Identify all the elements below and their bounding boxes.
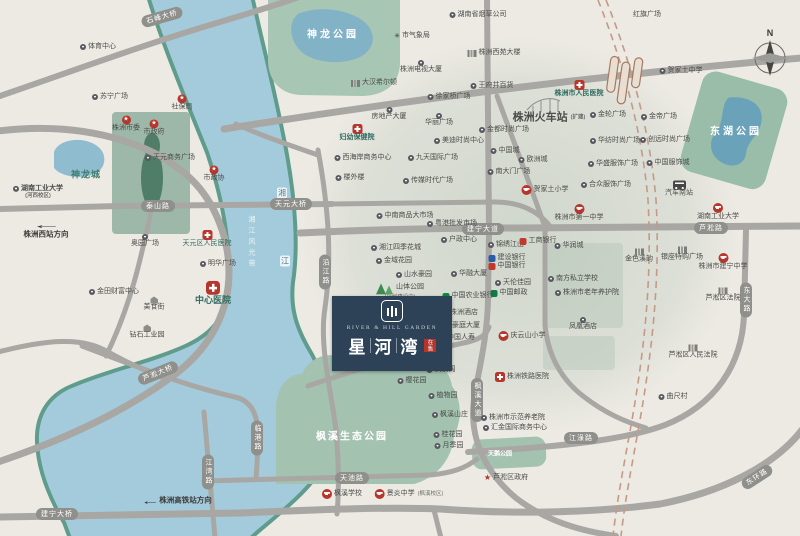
- poi-label: 美食街: [144, 303, 165, 311]
- poi-row: 粤港批发市场: [427, 220, 477, 228]
- poi-label: 市政府: [144, 128, 165, 136]
- area-label: 湘: [277, 188, 287, 199]
- poi-label: 枫溪学校: [334, 490, 362, 498]
- dot-icon: [590, 138, 596, 144]
- dot-icon: [432, 412, 438, 418]
- poi: 株洲西苑大楼: [468, 49, 521, 57]
- bank-red-icon: [489, 262, 496, 269]
- hosp-icon: [202, 230, 212, 240]
- poi-label: 湘江四季花城: [379, 244, 421, 252]
- poi-label: 株洲火车站: [513, 112, 568, 125]
- poi-row: 华融大厦: [451, 270, 487, 278]
- poi: 天元区人民医院: [183, 230, 232, 248]
- poi-row: 房地产大厦: [372, 113, 407, 121]
- poi: 妇幼保健院: [340, 124, 375, 142]
- poi-label: 株洲市委: [112, 124, 140, 132]
- poi: 金田财富中心: [89, 288, 139, 296]
- dot-icon: [647, 160, 653, 166]
- poi-row: 山体公园: [376, 281, 424, 294]
- poi-label: 创远时尚广场: [648, 136, 690, 144]
- dot-icon: [80, 44, 86, 50]
- poi-row: 枫溪学校: [322, 489, 362, 499]
- poi-row: 楼外楼: [336, 174, 365, 182]
- poi: 南方私立学校: [548, 275, 598, 283]
- poi-row: 妇幼保健院: [340, 134, 375, 142]
- poi-row: 贺家土中学: [660, 67, 703, 75]
- poi-label: 美迪时尚中心: [442, 137, 484, 145]
- dot-icon: [13, 186, 19, 192]
- poi: 美迪时尚中心: [434, 137, 484, 145]
- house-icon: [150, 296, 158, 303]
- school-icon: [322, 489, 332, 499]
- poi-label: 房地产大厦: [372, 113, 407, 121]
- dot-icon: [488, 169, 494, 175]
- poi-row: ★芦淞区政府: [484, 474, 528, 482]
- poi: 建设银行: [489, 254, 526, 262]
- bld-icon: [351, 79, 360, 86]
- poi: 曲尺村: [659, 393, 688, 401]
- dot-icon: [451, 271, 457, 277]
- asterisk-icon: ✳: [394, 32, 400, 39]
- poi-label: 金色溪韵: [625, 255, 653, 263]
- poi-label: 建设银行: [498, 254, 526, 262]
- poi-row: 湖南工业大学: [697, 213, 739, 221]
- poi-row: 庆云山小学: [499, 331, 546, 341]
- poi-label: 奥园广场: [131, 240, 159, 248]
- poi-label: 湖南工业大学: [21, 185, 63, 193]
- dot-icon: [371, 245, 377, 251]
- poi-row: 株洲市人民医院: [555, 90, 604, 98]
- poi-label: 贺家土中学: [668, 67, 703, 75]
- poi-row: 钻石工业园: [130, 331, 165, 339]
- poi-label: 豪庭大厦: [452, 322, 480, 330]
- poi-row: 体育中心: [80, 43, 116, 51]
- poi-label: 华丽广场: [425, 119, 453, 127]
- poi-label: 凤凰酒店: [569, 323, 597, 331]
- poi-row: 社保局: [172, 103, 193, 111]
- poi-label: 株洲市示范养老院: [489, 414, 545, 422]
- poi: 株洲火车站(扩建): [513, 112, 586, 125]
- poi-row: 奥园广场: [131, 240, 159, 248]
- poi: 楼外楼: [336, 174, 365, 182]
- poi: 金色溪韵: [625, 248, 653, 263]
- dot-icon: [408, 155, 414, 161]
- dot-icon: [491, 148, 497, 154]
- area-label: 江: [280, 256, 290, 267]
- poi: ✳市气象局: [394, 32, 430, 40]
- poi-row: 红旗广场: [633, 11, 661, 19]
- property-name-char: 湾: [401, 333, 418, 358]
- poi: 湘江四季花城: [371, 244, 421, 252]
- poi-label: 天元区人民医院: [183, 240, 232, 248]
- poi-label: 中国邮政: [500, 289, 528, 297]
- poi-row: 株洲火车站(扩建): [513, 112, 586, 125]
- road-label: 沿江路: [319, 255, 331, 290]
- poi: ★芦淞区政府: [484, 474, 528, 482]
- poi-label: 中心医院: [195, 295, 231, 305]
- poi-label: 芦淞区人民法院: [669, 351, 718, 359]
- poi: 南大门广场: [488, 168, 531, 176]
- poi-row: 芦淞区人民法院: [669, 351, 718, 359]
- poi: 中国银行: [489, 262, 526, 270]
- poi-row: 中心医院: [195, 295, 231, 305]
- poi: 九天国际广场: [408, 154, 458, 162]
- poi: 金帝广场: [641, 113, 677, 121]
- property-badge: RIVER & HILL GARDEN 星河湾在售: [332, 296, 452, 371]
- poi-label: 金都时尚广场: [487, 126, 529, 134]
- dot-icon: [200, 261, 206, 267]
- poi: ★社保局: [172, 94, 193, 111]
- poi-label: 体育中心: [88, 43, 116, 51]
- tree-icon: [376, 281, 394, 294]
- dot-icon: [376, 258, 382, 264]
- poi-row: 美迪时尚中心: [434, 137, 484, 145]
- poi-label: 社保局: [172, 103, 193, 111]
- poi: 美食街: [144, 296, 165, 311]
- poi-row: 华润城: [555, 242, 584, 250]
- dot-icon: [519, 157, 525, 163]
- poi: 贺家土中学: [660, 67, 703, 75]
- poi-row: 金域花园: [376, 257, 412, 265]
- poi-row: 合众服饰广场: [581, 181, 631, 189]
- poi-label: 贺家土小学: [534, 186, 569, 194]
- dot-icon: [428, 94, 434, 100]
- poi: 株洲市老年养护院: [555, 289, 619, 297]
- poi-label: 户政中心: [449, 236, 477, 244]
- dot-icon: [450, 12, 456, 18]
- poi: 中国邮政: [491, 289, 528, 297]
- arrow-left-icon: ←: [30, 221, 61, 229]
- poi-label: 株洲酒店: [450, 309, 478, 317]
- poi-label: 华纺时尚广场: [598, 137, 640, 145]
- poi-label: 南大门广场: [496, 168, 531, 176]
- poi-label-suffix: (枫溪校区): [418, 491, 444, 497]
- poi-row: 曲尺村: [659, 393, 688, 401]
- area-label: 神龙城: [71, 168, 101, 181]
- dot-icon: [483, 425, 489, 431]
- poi-row: 金轮广场: [590, 111, 626, 119]
- poi-row: 山水豪园: [396, 271, 432, 279]
- poi: 徐家桥广场: [428, 93, 471, 101]
- poi: 植物园: [429, 392, 458, 400]
- bld-icon: [468, 49, 477, 56]
- school-icon: [574, 204, 584, 214]
- poi-label: 工商银行: [529, 237, 557, 245]
- poi: 凤凰酒店: [569, 317, 597, 331]
- poi-label: 徐家桥广场: [436, 93, 471, 101]
- poi-label: 传媒时代广场: [411, 177, 453, 185]
- dot-icon: [427, 221, 433, 227]
- poi-row: 市政府: [144, 128, 165, 136]
- area-label: 神龙公园: [307, 26, 359, 41]
- poi: 苏宁广场: [92, 93, 128, 101]
- poi: ★市政协: [204, 165, 225, 182]
- poi-row: 创远时尚广场: [640, 136, 690, 144]
- dot-icon: [660, 68, 666, 74]
- poi-row: 湖南工业大学: [13, 185, 63, 193]
- hosp-lg-icon: [206, 281, 220, 295]
- poi-row: 金都时尚广场: [479, 126, 529, 134]
- poi-row: 金色溪韵: [625, 255, 653, 263]
- poi-row: 银座特购广场: [661, 253, 703, 261]
- poi: 奥园广场: [131, 234, 159, 248]
- poi: 天伦佳园: [495, 279, 531, 287]
- poi-label: 九天国际广场: [416, 154, 458, 162]
- direction-label: ←株洲西站方向: [24, 221, 69, 240]
- poi: ★市政府: [144, 119, 165, 136]
- poi-label: 西海岸商务中心: [343, 154, 392, 162]
- property-logo-icon: [381, 300, 403, 322]
- poi: 株洲市示范养老院: [481, 414, 545, 422]
- poi: 西海岸商务中心: [335, 154, 392, 162]
- area-label: 湘江风光带: [246, 216, 256, 271]
- poi-label: 金帝广场: [649, 113, 677, 121]
- poi-label: 枫溪山庄: [440, 411, 468, 419]
- poi: 金都时尚广场: [479, 126, 529, 134]
- direction-label: ←株洲高铁站方向: [144, 495, 212, 506]
- gov-icon: ★: [178, 94, 187, 103]
- poi-label: 植物园: [437, 392, 458, 400]
- poi: 华融大厦: [451, 270, 487, 278]
- property-name-char: 河: [375, 333, 392, 358]
- school-icon: [499, 331, 509, 341]
- school-icon: [713, 203, 723, 213]
- poi-label: 樱花园: [406, 377, 427, 385]
- poi: 贺家土小学: [522, 185, 569, 195]
- poi-label: 粤港批发市场: [435, 220, 477, 228]
- poi-label: 红旗广场: [633, 11, 661, 19]
- dot-icon: [434, 138, 440, 144]
- poi: 中心医院: [195, 281, 231, 305]
- poi-label: 市政协: [204, 174, 225, 182]
- area-label: 天鹅公园: [488, 449, 512, 458]
- poi-row: 株洲市示范养老院: [481, 414, 545, 422]
- poi-label: 苏宁广场: [100, 93, 128, 101]
- gov-icon: ★: [210, 165, 219, 174]
- poi-label: 桂花园: [442, 431, 463, 439]
- poi: 桂花园: [434, 431, 463, 439]
- poi-label: 湖南工业大学: [697, 213, 739, 221]
- dot-icon: [429, 393, 435, 399]
- poi-label: 株洲市第一中学: [555, 214, 604, 222]
- dot-icon: [590, 112, 596, 118]
- poi-label: 妇幼保健院: [340, 134, 375, 142]
- poi: 欧洲城: [519, 156, 548, 164]
- poi-label: 庆云山小学: [511, 332, 546, 340]
- bld-icon: [635, 248, 644, 255]
- poi-row: 市政协: [204, 174, 225, 182]
- poi: 枫溪学校: [322, 489, 362, 499]
- bank-blue-icon: [489, 254, 496, 261]
- compass-north-label: N: [767, 28, 774, 38]
- poi-row: 王府井百货: [471, 82, 514, 90]
- location-map: 体育中心苏宁广场★社保局★株洲市委★市政府天元商务广场★市政协湖南工业大学(河西…: [0, 0, 800, 536]
- poi-row: 湘江四季花城: [371, 244, 421, 252]
- road-label: 建宁大桥: [36, 508, 78, 520]
- poi-row: 株洲西苑大楼: [468, 49, 521, 57]
- poi-label: 株洲市建宁中学: [699, 263, 748, 271]
- poi-label: 华融大厦: [459, 270, 487, 278]
- dot-icon: [581, 182, 587, 188]
- poi-row: 植物园: [429, 392, 458, 400]
- poi-row: 株洲铁路医院: [495, 372, 549, 382]
- poi: 红旗广场: [633, 11, 661, 19]
- poi-row: 枫溪山庄: [432, 411, 468, 419]
- bld-icon: [678, 246, 687, 253]
- poi-label: 银座特购广场: [661, 253, 703, 261]
- poi: 株洲铁路医院: [495, 372, 549, 382]
- poi: 创远时尚广场: [640, 136, 690, 144]
- road-label: 临港路: [251, 421, 263, 456]
- road-label: 江湾路: [202, 455, 214, 490]
- poi-label: 中国农业银行: [452, 292, 494, 300]
- dot-icon: [377, 213, 383, 219]
- poi: 大汉希尔顿: [351, 79, 397, 87]
- poi: 王府井百货: [471, 82, 514, 90]
- poi: 庆云山小学: [499, 331, 546, 341]
- poi: 中国城: [491, 147, 520, 155]
- dot-icon: [479, 127, 485, 133]
- poi: 房地产大厦: [372, 107, 407, 121]
- dot-icon: [640, 137, 646, 143]
- poi: 中南商品大市场: [377, 212, 434, 220]
- poi: 湖南工业大学(河西校区): [13, 185, 63, 199]
- school-icon: [718, 253, 728, 263]
- poi: 汽车南站: [665, 180, 693, 197]
- dot-icon: [481, 415, 487, 421]
- dot-icon: [398, 378, 404, 384]
- dot-icon: [336, 175, 342, 181]
- char-divider: [370, 338, 371, 353]
- gov-icon: ★: [122, 115, 131, 124]
- poi-row: 樱花园: [398, 377, 427, 385]
- area-label: 东湖公园: [710, 123, 762, 138]
- poi-row: 月季园: [435, 442, 464, 450]
- poi-row: 贺家土小学: [522, 185, 569, 195]
- poi: 华纺时尚广场: [590, 137, 640, 145]
- gov-icon: ★: [150, 119, 159, 128]
- poi-label: 曲尺村: [667, 393, 688, 401]
- dot-icon: [548, 276, 554, 282]
- poi-label: 南方私立学校: [556, 275, 598, 283]
- poi-label: 合众服饰广场: [589, 181, 631, 189]
- poi-label: 山体公园: [396, 284, 424, 292]
- poi-row: 汇金国际商务中心: [483, 424, 547, 432]
- bus-icon: [673, 180, 686, 189]
- road-label: 天池路: [335, 472, 369, 484]
- poi: 株洲市建宁中学: [699, 253, 748, 271]
- poi-row: 中国银行: [489, 262, 526, 270]
- road-label: 东大路: [740, 283, 752, 318]
- property-name-char: 星: [349, 333, 366, 358]
- poi-row: 南大门广场: [488, 168, 531, 176]
- poi: 山水豪园: [396, 271, 432, 279]
- poi: 粤港批发市场: [427, 220, 477, 228]
- poi-row: 株洲市委: [112, 124, 140, 132]
- poi-row: 金田财富中心: [89, 288, 139, 296]
- poi: 株洲市人民医院: [555, 80, 604, 98]
- poi: 合众服饰广场: [581, 181, 631, 189]
- dot-icon: [588, 161, 594, 167]
- poi-row: 株洲市第一中学: [555, 214, 604, 222]
- poi-label: 金田财富中心: [97, 288, 139, 296]
- poi-label: 华盛服饰广场: [596, 160, 638, 168]
- bank-red-icon: [520, 237, 527, 244]
- road-label: 东环路: [739, 463, 774, 492]
- poi-row: 九天国际广场: [408, 154, 458, 162]
- poi-label: 金域花园: [384, 257, 412, 265]
- dot-icon: [488, 242, 494, 248]
- hosp-icon: [574, 80, 584, 90]
- dot-icon: [403, 178, 409, 184]
- poi-row: 凤凰酒店: [569, 323, 597, 331]
- poi-row: 明华广场: [200, 260, 236, 268]
- poi-label: 大汉希尔顿: [362, 79, 397, 87]
- poi-row: 美食街: [144, 303, 165, 311]
- dot-icon: [641, 114, 647, 120]
- dot-icon: [335, 155, 341, 161]
- school-icon: [522, 185, 532, 195]
- poi-label: 天元商务广场: [153, 154, 195, 162]
- poi: 汇金国际商务中心: [483, 424, 547, 432]
- poi-row: 传媒时代广场: [403, 177, 453, 185]
- poi: 传媒时代广场: [403, 177, 453, 185]
- poi-label-suffix: (扩建): [571, 115, 586, 121]
- poi: ★株洲市委: [112, 115, 140, 132]
- poi-row: ✳市气象局: [394, 32, 430, 40]
- house-icon: [143, 324, 151, 331]
- poi-label: 天伦佳园: [503, 279, 531, 287]
- poi-label: 汽车南站: [665, 189, 693, 197]
- poi-row: 建设银行: [489, 254, 526, 262]
- poi: 户政中心: [441, 236, 477, 244]
- road-label: 石峰大桥: [140, 5, 184, 28]
- poi-label: 明华广场: [208, 260, 236, 268]
- sale-tag: 在售: [424, 339, 436, 352]
- poi-label: 汇金国际商务中心: [491, 424, 547, 432]
- dot-icon: [89, 289, 95, 295]
- dot-icon: [435, 443, 441, 449]
- bld-icon: [689, 344, 698, 351]
- road-label: 泰山路: [141, 200, 175, 212]
- poi-label: 景炎中学: [387, 490, 415, 498]
- poi: 天元商务广场: [145, 154, 195, 162]
- property-name-cn: 星河湾在售: [349, 333, 436, 358]
- poi-label: 山水豪园: [404, 271, 432, 279]
- poi-row: 桂花园: [434, 431, 463, 439]
- poi: 金轮广场: [590, 111, 626, 119]
- poi-row: 南方私立学校: [548, 275, 598, 283]
- poi-row: 株洲市建宁中学: [699, 263, 748, 271]
- poi-label: 株洲市老年养护院: [563, 289, 619, 297]
- hosp-icon: [495, 372, 505, 382]
- dot-icon: [555, 290, 561, 296]
- poi-label: 月季园: [443, 442, 464, 450]
- poi-row: 中国城: [491, 147, 520, 155]
- poi-row: 天元商务广场: [145, 154, 195, 162]
- poi: 景炎中学(枫溪校区): [375, 489, 444, 499]
- road-label: 芦淞路: [694, 222, 728, 234]
- poi-row: 大汉希尔顿: [351, 79, 397, 87]
- poi-row: 苏宁广场: [92, 93, 128, 101]
- poi-row: 工商银行: [520, 237, 557, 245]
- poi-row: 西海岸商务中心: [335, 154, 392, 162]
- poi-label: 中南商品大市场: [385, 212, 434, 220]
- poi-row: 户政中心: [441, 236, 477, 244]
- poi: 银座特购广场: [661, 246, 703, 261]
- poi: 株洲电视大厦: [400, 60, 442, 74]
- poi-label: 欧洲城: [527, 156, 548, 164]
